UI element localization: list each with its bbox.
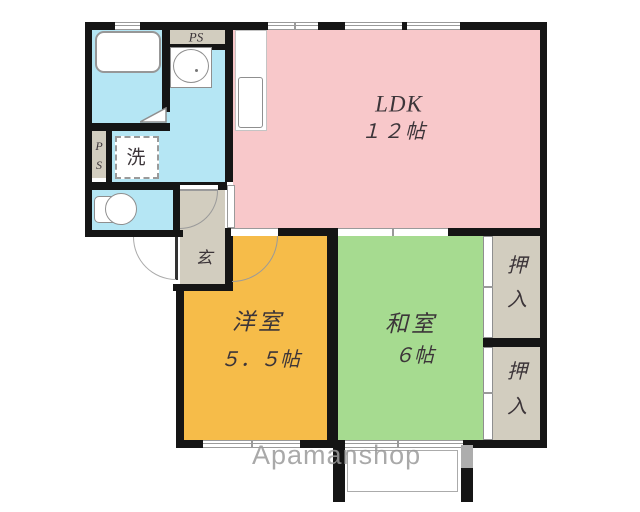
wall-toilet-bottom [85, 230, 183, 237]
wall-ldk-bottom [278, 228, 338, 236]
ldk-name-label: LDK [375, 93, 423, 116]
western-room-size-label: ５．５帖 [220, 350, 300, 370]
window [407, 22, 460, 30]
fusuma-divider [483, 392, 493, 394]
pipe-space-left-label-s: S [96, 159, 102, 171]
kitchen-sink [238, 77, 263, 128]
basin-drain [195, 69, 198, 72]
wall-kitchen-left [225, 30, 233, 182]
wall-toilet-right [173, 183, 180, 237]
window-divider [294, 22, 296, 30]
closet-upper-label-2: 入 [507, 290, 527, 310]
balcony-wall-right-upper [461, 445, 473, 468]
ldk-size-label: １２帖 [361, 122, 427, 142]
closet-upper-floor [493, 236, 540, 338]
entrance-door-arc [133, 237, 176, 280]
wall-closet-divider [483, 338, 547, 347]
washer-label: 洗 [126, 149, 145, 168]
wall-western-japanese [327, 236, 338, 448]
japanese-room-floor [338, 236, 483, 440]
sliding-door-divider [392, 228, 394, 236]
pipe-space-top-label: PS [189, 31, 203, 44]
toilet-bowl [105, 193, 137, 225]
door-opening-western [231, 228, 278, 236]
wall-ldk-bottom [448, 228, 547, 236]
wall-bath-bottom [85, 123, 170, 131]
closet-upper-label-1: 押 [507, 256, 527, 276]
western-room-name-label: 洋室 [232, 311, 284, 334]
fusuma-divider [483, 286, 493, 288]
window [268, 22, 318, 30]
closet-lower-label-1: 押 [507, 362, 527, 382]
floor-plan: LDK １２帖 洋室 ５．５帖 和室 ６帖 玄 洗 PS P S 押 入 押 入… [0, 0, 640, 512]
wall-bottom [463, 440, 547, 448]
balcony-wall-right-lower [461, 468, 473, 502]
bath-folding-door-icon [140, 107, 167, 123]
wall-ps-left-right [106, 131, 112, 182]
closet-lower-label-2: 入 [507, 397, 527, 417]
wall-bottom [176, 440, 203, 448]
japanese-room-name-label: 和室 [385, 313, 437, 336]
wall-western-left [176, 284, 184, 448]
vanity-basin [173, 49, 209, 83]
bathtub [95, 31, 161, 73]
pipe-space-left-label-p: P [95, 140, 102, 152]
window [115, 22, 140, 30]
watermark: Apamanshop [252, 440, 421, 471]
genkan-label: 玄 [196, 250, 213, 267]
window [345, 22, 402, 30]
ldk-hall-door [227, 185, 235, 228]
japanese-room-size-label: ６帖 [394, 346, 434, 366]
